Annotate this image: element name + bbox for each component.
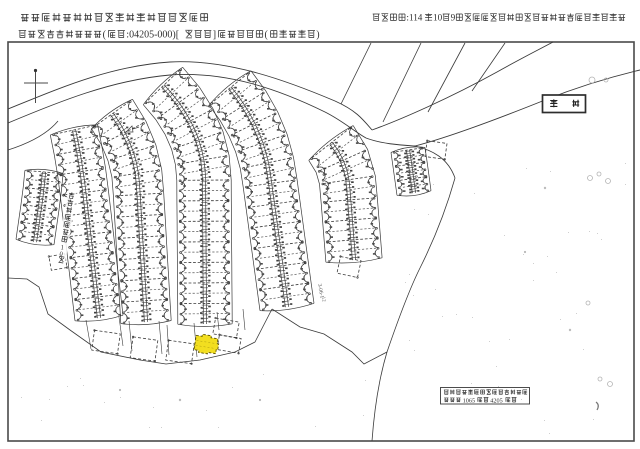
svg-text:]: ] [213,30,216,41]
svg-text:9: 9 [451,13,456,23]
svg-text::04205-000)[: :04205-000)[ [126,30,179,41]
svg-text:1065: 1065 [463,397,475,404]
svg-text::114: :114 [406,13,422,23]
svg-text:10: 10 [433,13,443,23]
svg-text:): ) [316,30,319,41]
svg-text:4205: 4205 [490,397,502,404]
